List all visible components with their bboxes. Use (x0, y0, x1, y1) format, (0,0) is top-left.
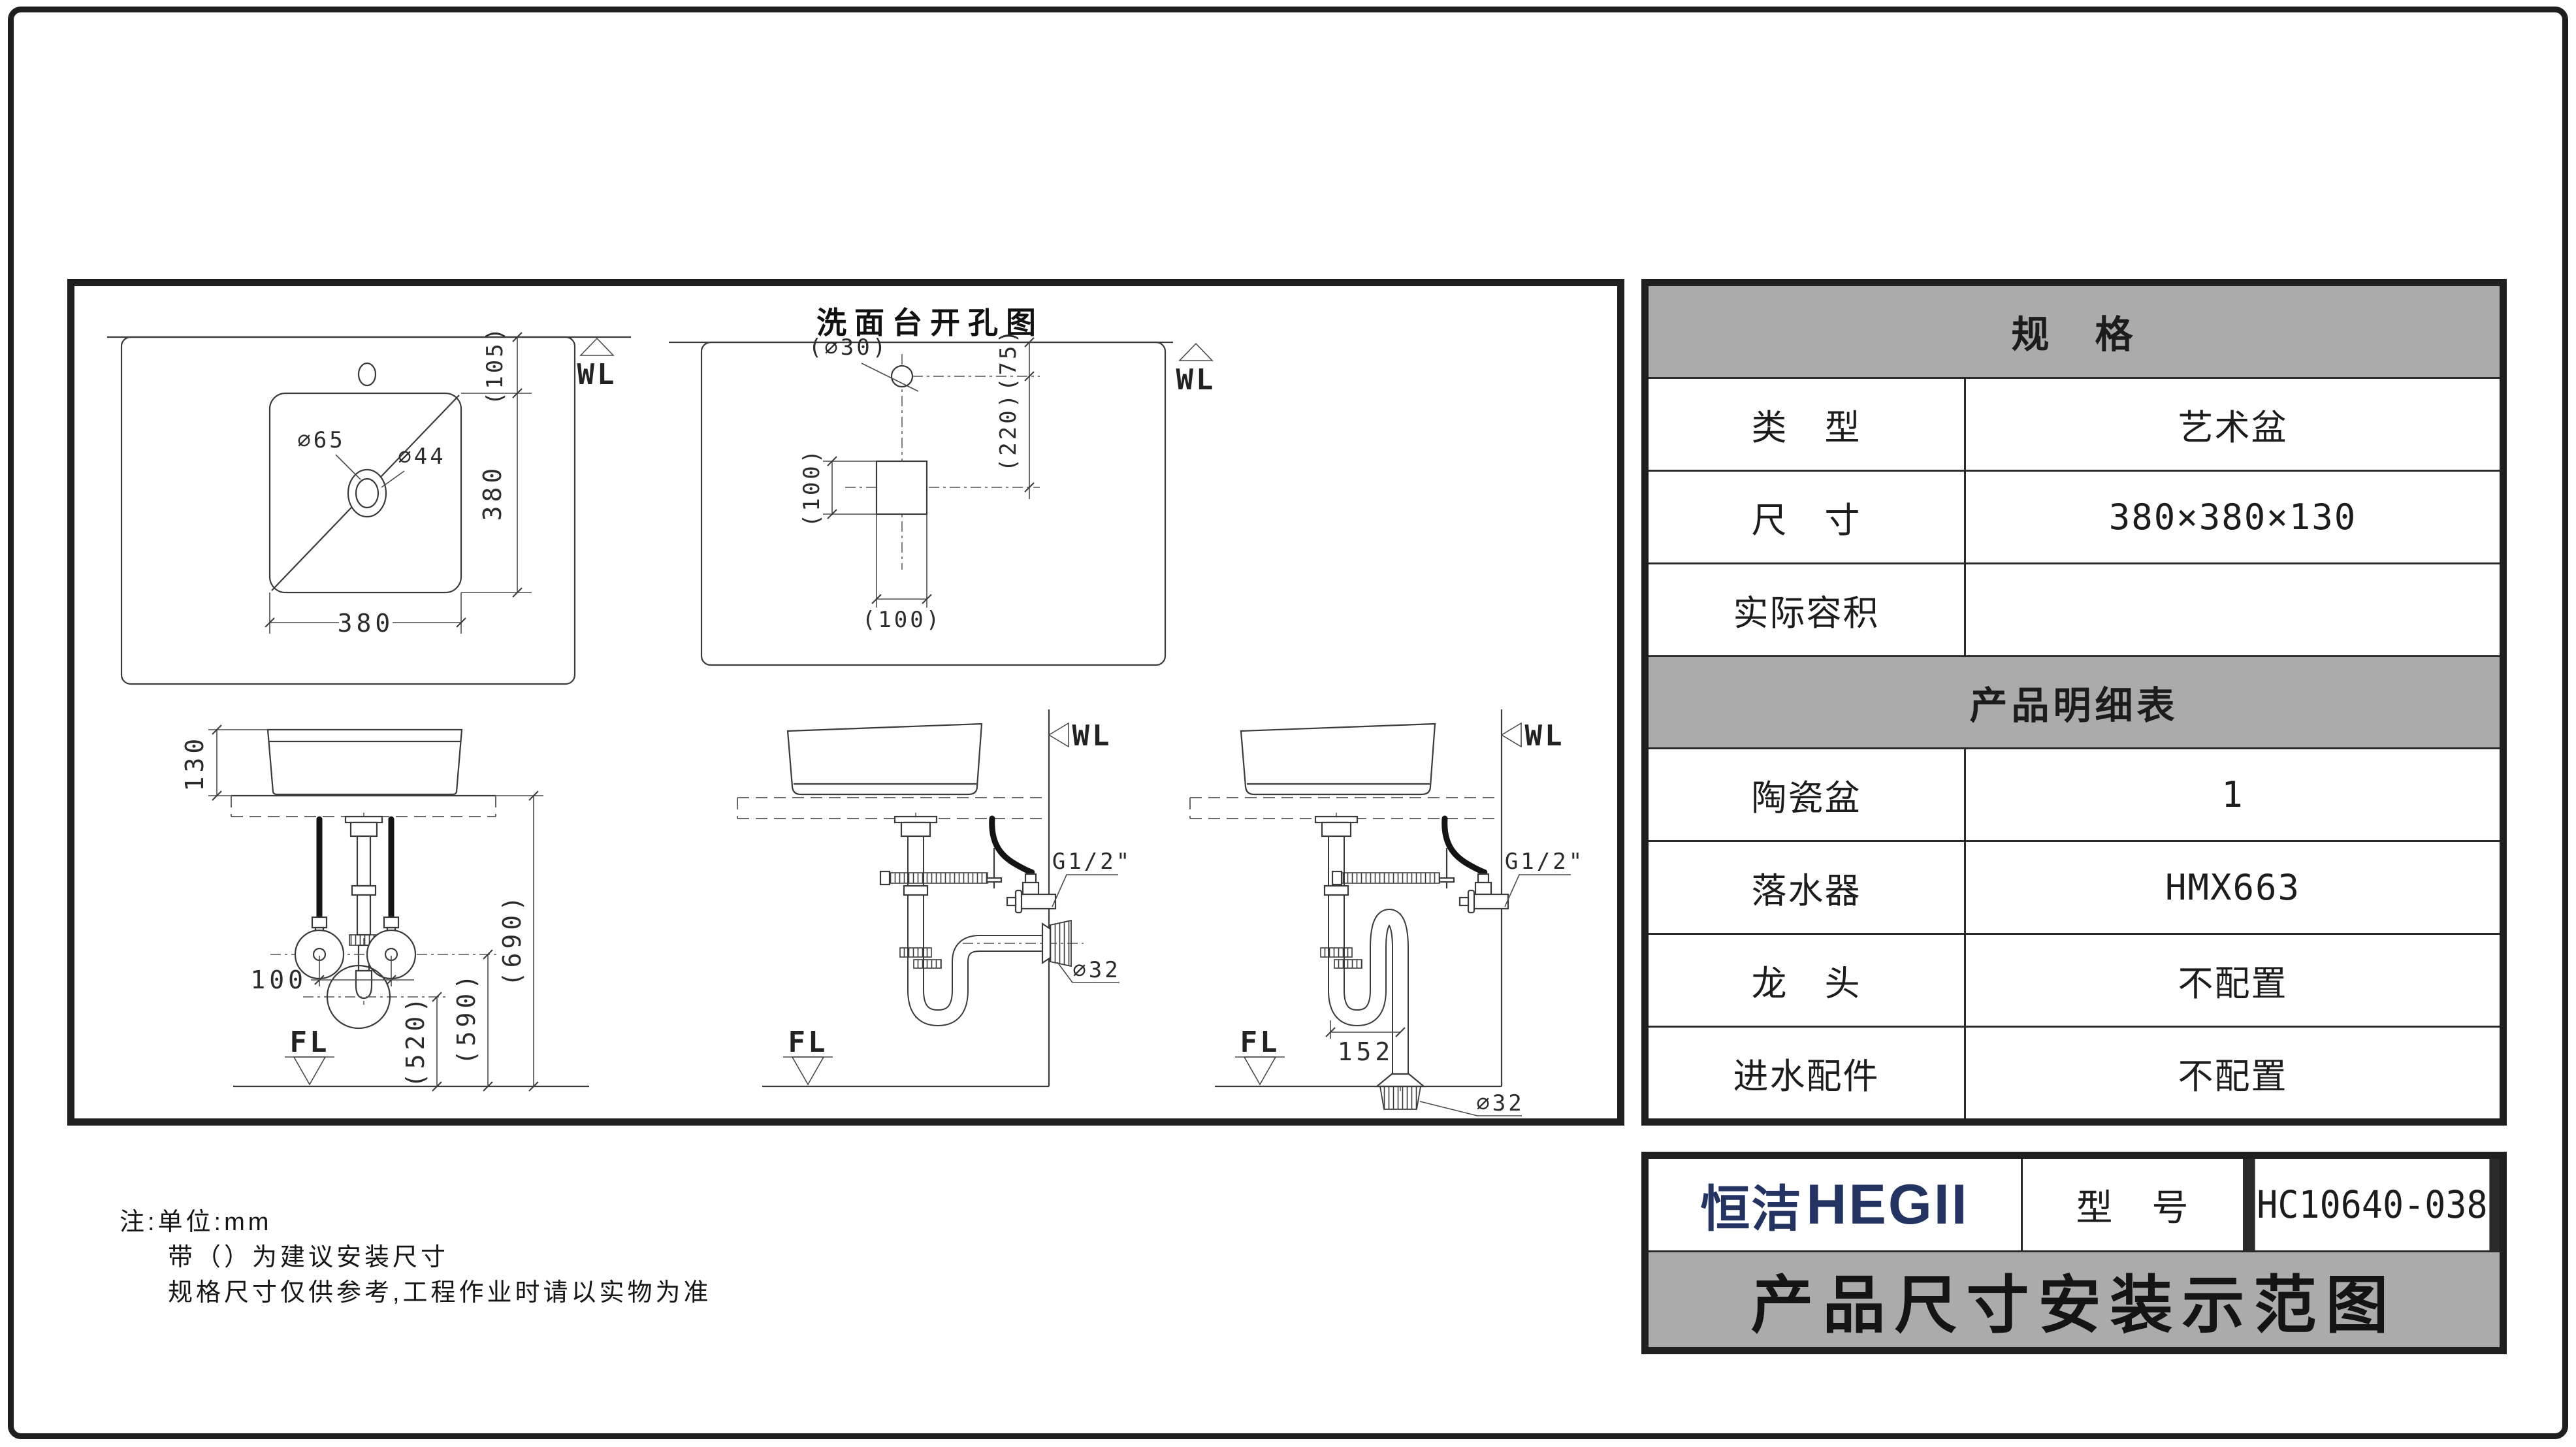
model-value: HC10640-038 (2255, 1159, 2490, 1250)
dim-dia32-wall: ∅32 (1072, 957, 1120, 983)
fl-marker-strap: FL (1235, 1026, 1285, 1084)
page: { "colors": {"brand_navy": "#233463", "h… (0, 0, 2576, 1447)
spec-header: 规 格 (1649, 286, 2500, 377)
spec-row-label: 尺 寸 (1649, 472, 1964, 562)
spec-row-label: 实际容积 (1649, 564, 1964, 655)
fl-label: FL (1240, 1026, 1280, 1059)
notes: 注:单位:mm 带（）为建议安装尺寸 规格尺寸仅供参考,工程作业时请以实物为准 (120, 1205, 712, 1311)
logo-cn-text: 恒洁 (1700, 1169, 1802, 1241)
spec-row-value: 380×380×130 (1966, 472, 2500, 562)
front-install-drawing: 130 100 (690) (590) (520) FL (180, 725, 589, 1091)
note-line-2: 带（）为建议安装尺寸 (120, 1241, 712, 1276)
dim-105: (105) (482, 325, 508, 405)
spec-table: 规 格 类 型 艺术盆 尺 寸 380×380×130 实际容积 产品明细表 陶… (1641, 279, 2507, 1126)
lift-rod (890, 873, 988, 883)
dim-75: (75) (995, 327, 1022, 391)
dim-590: (590) (452, 971, 481, 1065)
spec-row-value (1966, 564, 2500, 655)
detail-row-label: 进水配件 (1649, 1028, 1964, 1118)
wl-marker-ptrap: WL (1049, 719, 1112, 753)
wl-label: WL (1176, 363, 1216, 397)
detail-row-value: 不配置 (1966, 935, 2500, 1026)
detail-row-value: HMX663 (1966, 842, 2500, 933)
fl-marker-ptrap: FL (783, 1026, 833, 1084)
dim-100: 100 (250, 966, 307, 994)
wl-label: WL (1072, 719, 1112, 753)
detail-row-value: 不配置 (1966, 1028, 2500, 1118)
wall-drain-outlet (1050, 920, 1071, 966)
wl-marker-strap: WL (1502, 719, 1564, 753)
dim-g-half-strap: G1/2" (1505, 849, 1585, 875)
dim-380-vertical: 380 (478, 464, 507, 521)
drain-drill-hole (877, 461, 927, 514)
brand-logo: 恒洁 HEGII (1649, 1159, 2021, 1250)
note-line-3: 规格尺寸仅供参考,工程作业时请以实物为准 (120, 1276, 712, 1311)
wl-marker-hole-diagram: WL (1176, 344, 1216, 397)
wl-label: WL (1525, 719, 1565, 753)
strap-install-drawing: WL ∅32 152 (1190, 709, 1585, 1116)
detail-row-label: 陶瓷盆 (1649, 749, 1964, 840)
faucet-hole (359, 363, 376, 385)
sheet-title: 产品尺寸安装示范图 (1649, 1252, 2500, 1347)
installation-drawing-svg: ∅65 ∅44 (105) 380 380 WL 洗面台开孔图 (74, 286, 1617, 1118)
dim-dia65: ∅65 (297, 427, 345, 453)
dim-dia30: (∅30) (809, 334, 888, 361)
fl-label: FL (290, 1026, 330, 1059)
lift-rod (1342, 873, 1440, 883)
wl-marker-top-view: WL (577, 338, 617, 391)
top-view-drawing: ∅65 ∅44 (105) 380 380 WL (107, 325, 631, 684)
title-block: 恒洁 HEGII 型 号 HC10640-038 产品尺寸安装示范图 (1641, 1152, 2507, 1354)
dim-dia32-floor: ∅32 (1476, 1090, 1524, 1116)
floor-drain-outlet (1380, 1086, 1421, 1109)
dim-220: (220) (995, 392, 1022, 472)
drawing-panel: ∅65 ∅44 (105) 380 380 WL 洗面台开孔图 (67, 279, 1624, 1126)
detail-header: 产品明细表 (1649, 657, 2500, 748)
logo-en-text: HEGII (1806, 1173, 1969, 1237)
dim-130: 130 (180, 735, 209, 792)
detail-row-value: 1 (1966, 749, 2500, 840)
dim-520: (520) (401, 994, 430, 1088)
hole-drilling-drawing: 洗面台开孔图 (∅30) (75) (220) (100) (100) W (669, 306, 1216, 665)
ptrap-install-drawing: WL ∅32 G1/2" FL (737, 709, 1132, 1086)
model-label: 型 号 (2023, 1159, 2243, 1250)
wl-label: WL (577, 358, 617, 391)
spec-row-value: 艺术盆 (1966, 379, 2500, 470)
drain-hole-inner (356, 479, 378, 508)
dim-g-half-ptrap: G1/2" (1052, 849, 1132, 875)
dim-100-left: (100) (799, 447, 825, 527)
fl-marker-front-view: FL (285, 1026, 334, 1084)
dim-100-bottom: (100) (862, 607, 942, 633)
spec-row-label: 类 型 (1649, 379, 1964, 470)
dim-690: (690) (498, 892, 526, 986)
dim-380-horizontal: 380 (338, 609, 394, 638)
note-line-1: 注:单位:mm (120, 1205, 712, 1241)
dim-dia44: ∅44 (398, 444, 445, 470)
dim-152: 152 (1338, 1037, 1394, 1066)
detail-row-label: 龙 头 (1649, 935, 1964, 1026)
fl-label: FL (788, 1026, 828, 1059)
detail-row-label: 落水器 (1649, 842, 1964, 933)
